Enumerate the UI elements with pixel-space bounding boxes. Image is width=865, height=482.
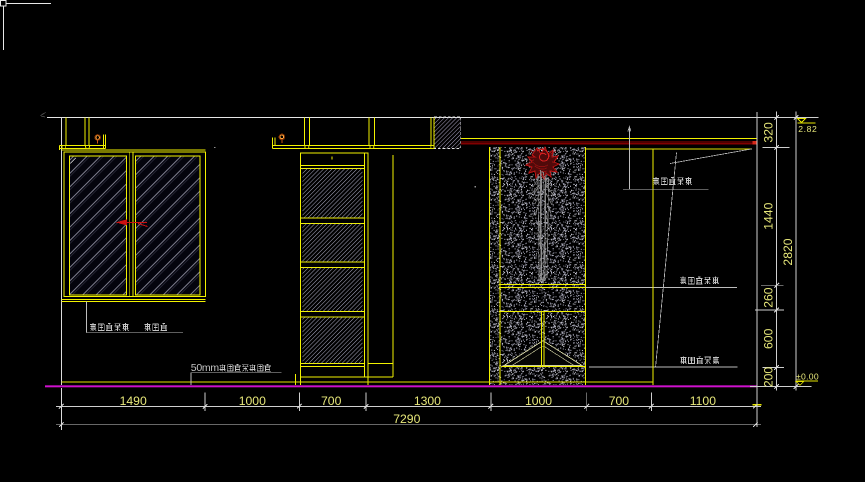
svg-text:7290: 7290 [393,412,420,426]
svg-text:1000: 1000 [239,394,266,408]
svg-text:200: 200 [762,367,776,388]
svg-text:50mm: 50mm [191,362,220,374]
svg-text:1000: 1000 [525,394,552,408]
svg-text:320: 320 [762,122,776,143]
svg-text:1490: 1490 [120,394,147,408]
svg-text:2820: 2820 [781,238,795,265]
svg-text:700: 700 [609,394,630,408]
svg-text:1300: 1300 [414,394,441,408]
svg-text:±0.00: ±0.00 [796,371,819,381]
svg-text:1440: 1440 [762,202,776,229]
svg-text:2.82: 2.82 [798,124,817,134]
svg-text:600: 600 [762,328,776,349]
svg-text:260: 260 [762,287,776,308]
svg-text:1100: 1100 [690,394,716,408]
svg-text:700: 700 [321,394,342,408]
